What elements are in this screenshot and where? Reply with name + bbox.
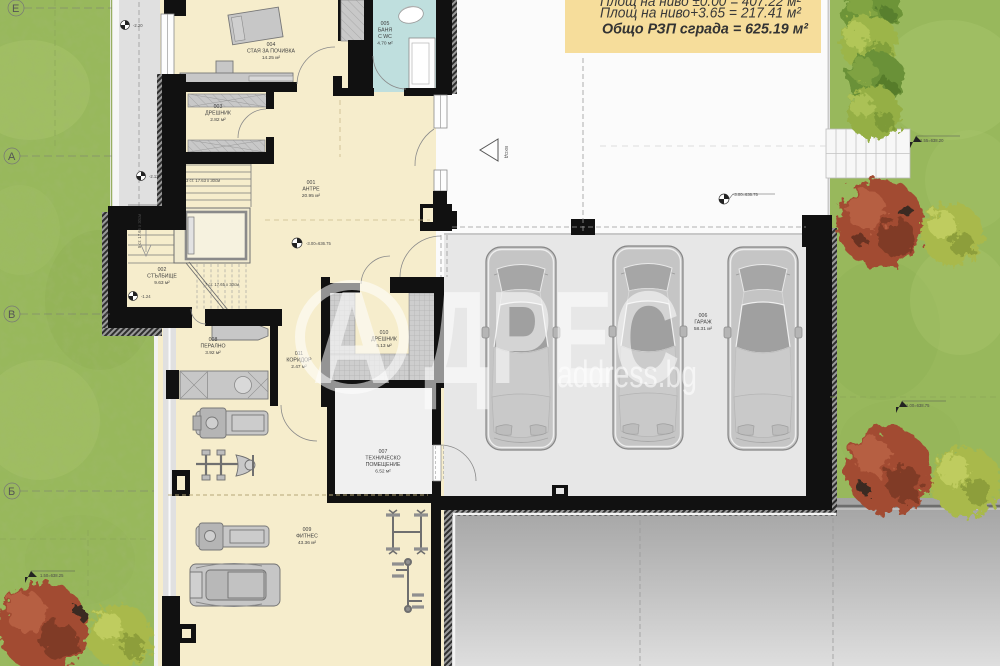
svg-text:Е: Е — [12, 3, 19, 15]
svg-text:В: В — [8, 309, 15, 321]
svg-text:ВХОД: ВХОД — [504, 146, 509, 158]
svg-text:-2.12: -2.12 — [149, 174, 159, 179]
svg-text:address.bg: address.bg — [557, 354, 697, 396]
svg-text:1.50=638.25: 1.50=638.25 — [40, 573, 64, 578]
svg-text:1.00=638.75: 1.00=638.75 — [906, 403, 930, 408]
svg-text:7 ст. 17.65 х 30см: 7 ст. 17.65 х 30см — [205, 282, 239, 287]
svg-text:5 ст. 17.65 х 30см: 5 ст. 17.65 х 30см — [137, 214, 142, 248]
svg-text:Общо РЗП сграда = 625.19 м²: Общо РЗП сграда = 625.19 м² — [602, 21, 809, 38]
svg-text:-3.00=636.75: -3.00=636.75 — [733, 192, 758, 197]
svg-text:А: А — [312, 264, 392, 411]
svg-text:3 ст. 17.63 х 30см: 3 ст. 17.63 х 30см — [186, 178, 220, 183]
svg-text:1.55=638.20: 1.55=638.20 — [920, 138, 944, 143]
svg-text:-2.20: -2.20 — [133, 23, 143, 28]
svg-text:А: А — [8, 151, 16, 163]
svg-text:-1.24: -1.24 — [141, 294, 151, 299]
svg-text:Площ на ниво+3.65 = 217.41 м²: Площ на ниво+3.65 = 217.41 м² — [600, 5, 802, 22]
svg-text:-3.00=636.75: -3.00=636.75 — [306, 241, 331, 246]
svg-text:Б: Б — [8, 486, 15, 498]
